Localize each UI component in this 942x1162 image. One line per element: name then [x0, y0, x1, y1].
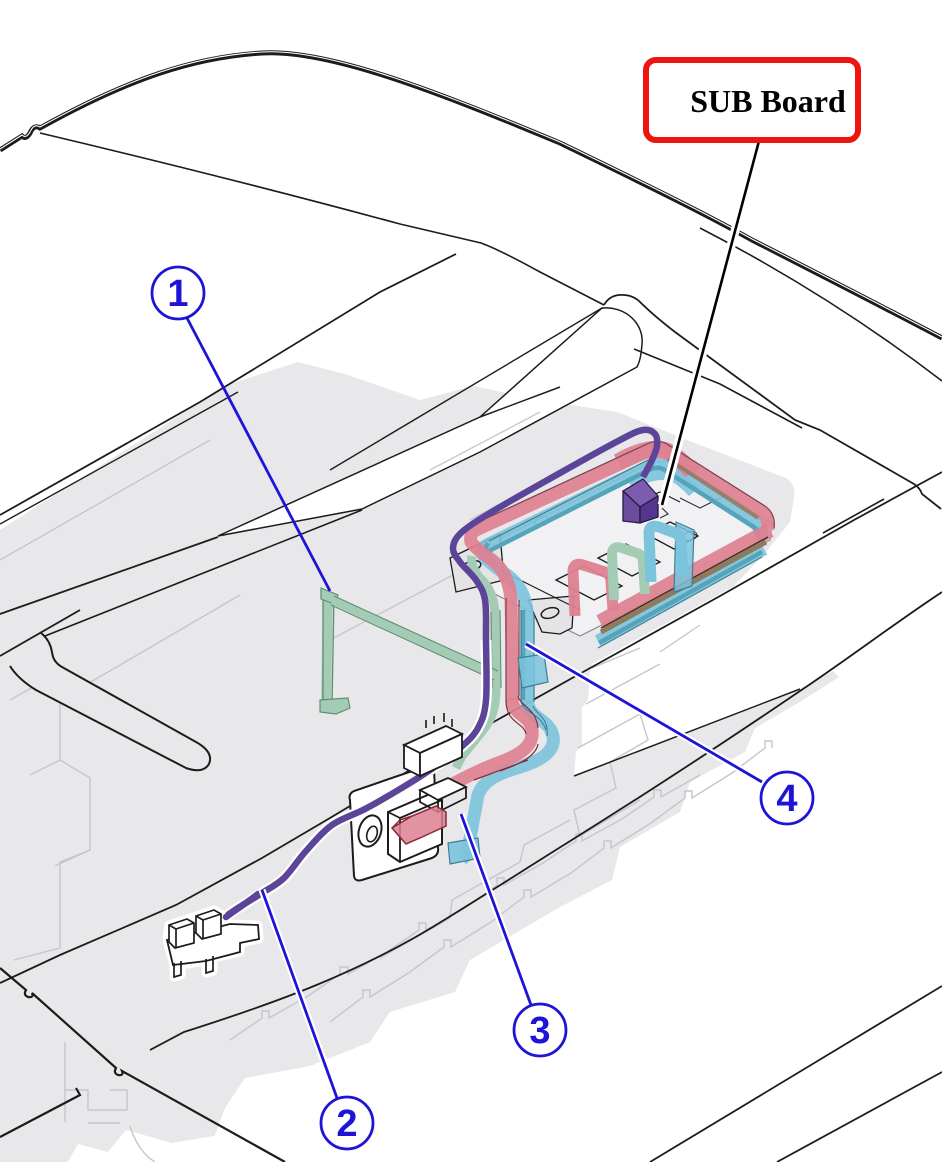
svg-text:SUB Board: SUB Board: [690, 83, 846, 119]
svg-text:4: 4: [776, 778, 797, 820]
svg-text:2: 2: [336, 1103, 357, 1145]
svg-text:3: 3: [529, 1010, 550, 1052]
svg-text:1: 1: [167, 273, 188, 315]
